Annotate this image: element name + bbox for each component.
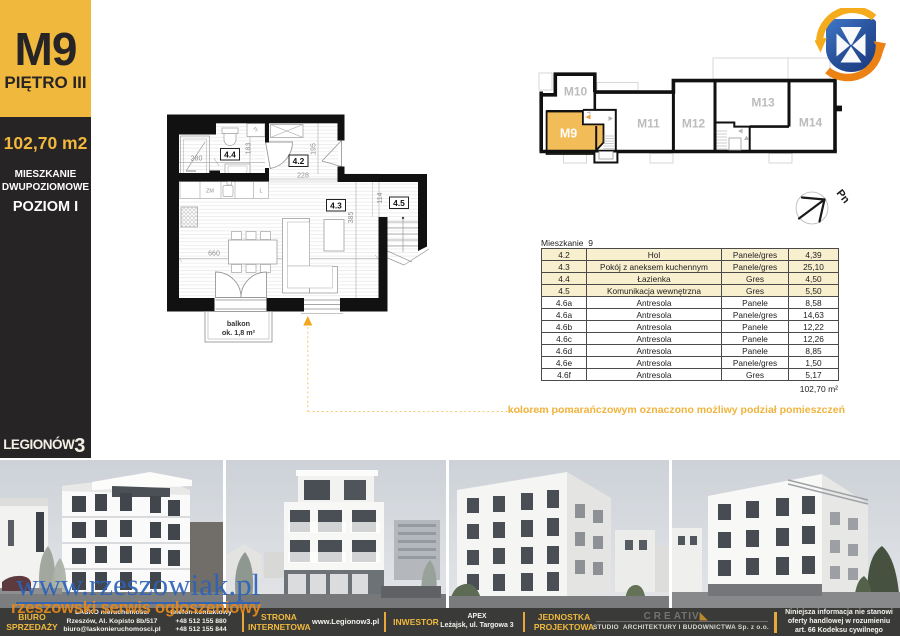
svg-text:114: 114 xyxy=(377,192,384,203)
svg-text:M9: M9 xyxy=(560,127,577,141)
svg-text:4.4: 4.4 xyxy=(224,150,236,160)
svg-text:L: L xyxy=(259,189,262,195)
svg-text:M12: M12 xyxy=(682,117,706,131)
svg-text:ok. 1,8 m²: ok. 1,8 m² xyxy=(222,328,256,337)
svg-text:195: 195 xyxy=(311,143,318,155)
svg-text:M14: M14 xyxy=(799,116,823,130)
svg-text:M11: M11 xyxy=(637,117,660,131)
svg-text:183: 183 xyxy=(246,143,253,155)
svg-text:660: 660 xyxy=(208,251,220,258)
svg-text:228: 228 xyxy=(297,173,309,180)
svg-text:M13: M13 xyxy=(751,96,775,110)
svg-text:balkon: balkon xyxy=(227,319,250,328)
svg-text:4.3: 4.3 xyxy=(330,201,342,211)
svg-text:280: 280 xyxy=(191,156,203,163)
svg-text:M10: M10 xyxy=(564,85,588,99)
svg-text:385: 385 xyxy=(348,212,355,224)
svg-text:Pn: Pn xyxy=(834,187,850,206)
svg-text:4.5: 4.5 xyxy=(393,198,405,208)
svg-text:4.2: 4.2 xyxy=(293,156,305,166)
svg-text:ZM: ZM xyxy=(206,189,214,195)
